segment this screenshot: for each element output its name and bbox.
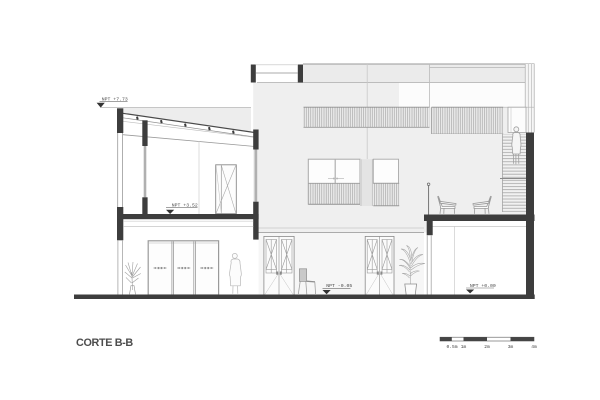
- svg-text:4m: 4m: [531, 344, 537, 350]
- svg-text:0.5m: 0.5m: [446, 344, 457, 350]
- svg-text:1m: 1m: [461, 344, 467, 350]
- svg-text:3m: 3m: [508, 344, 514, 350]
- svg-text:2m: 2m: [484, 344, 490, 350]
- svg-text:CORTE B-B: CORTE B-B: [76, 337, 133, 349]
